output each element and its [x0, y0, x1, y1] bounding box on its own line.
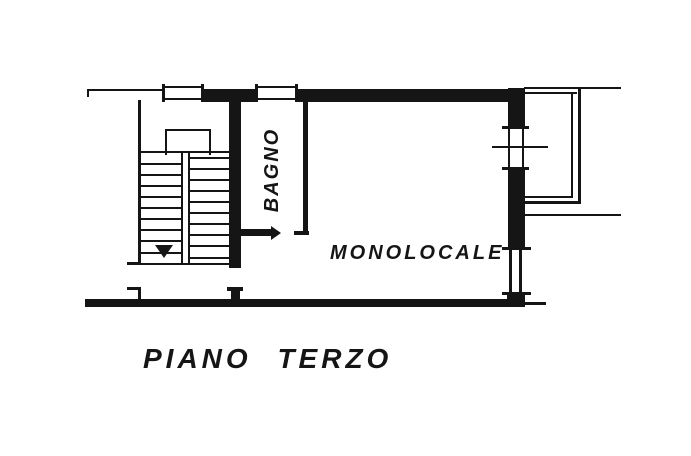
exterior-wall-bottom: [85, 299, 525, 307]
balcony-parapet-inner-right: [571, 92, 573, 198]
stair-tread: [190, 201, 229, 203]
stair-tread: [141, 185, 181, 187]
window-top-left-bottom-line: [163, 98, 204, 100]
window-top-mid-jamb-left: [255, 84, 258, 102]
window-right-upper-jamb-left: [508, 129, 510, 169]
exterior-wall-top-segment-b: [297, 89, 512, 102]
stair-tread: [190, 190, 229, 192]
window-right-upper-cross-line: [492, 146, 548, 148]
window-right-lower-jamb-right: [519, 250, 522, 294]
window-top-mid-bottom-line: [256, 98, 297, 100]
window-right-lower-tick-top: [502, 247, 531, 250]
bathroom-label: BAGNO: [262, 128, 282, 212]
entry-door-stub-left: [138, 290, 141, 302]
exterior-wall-left-end-tick: [87, 89, 89, 97]
stair-center-stringer-left: [181, 152, 183, 264]
entry-door-stub-right: [231, 290, 240, 302]
stair-tread: [190, 223, 229, 225]
stair-direction-arrow-icon: [155, 245, 173, 258]
stair-tread: [190, 245, 229, 247]
exterior-wall-bottom-extension: [524, 302, 546, 305]
stair-tread: [190, 212, 229, 214]
entry-door-stub-right-bar: [227, 287, 243, 291]
stair-tread: [190, 157, 229, 159]
floor-caption: PIANO TERZO: [143, 345, 392, 373]
stair-tread: [141, 240, 181, 242]
balcony-parapet-outer-right: [578, 87, 581, 204]
bathroom-right-wall-foot: [294, 231, 309, 235]
bathroom-right-wall: [303, 100, 308, 233]
bathroom-door-arrow-icon: [271, 226, 281, 240]
stair-tread: [141, 207, 181, 209]
stair-tread: [190, 179, 229, 181]
stair-tread: [141, 218, 181, 220]
window-top-left-jamb-left: [162, 84, 165, 102]
studio-label: MONOLOCALE: [330, 243, 504, 263]
balcony-top-line: [524, 87, 621, 89]
balcony-parapet-outer-bottom: [523, 201, 581, 204]
entry-door-stub-left-tick: [127, 287, 141, 290]
exterior-wall-right-middle: [508, 170, 525, 249]
window-right-lower-jamb-left: [509, 250, 512, 294]
balcony-parapet-inner-bottom: [523, 196, 573, 198]
window-right-upper-jamb-right: [522, 129, 524, 169]
balcony-lower-thin-line: [524, 214, 621, 216]
stair-tread: [141, 196, 181, 198]
balcony-parapet-inner-top: [523, 92, 577, 94]
exterior-wall-right-upper: [508, 88, 525, 129]
floor-plan: BAGNO MONOLOCALE PIANO TERZO: [0, 0, 691, 456]
stair-tread: [190, 168, 229, 170]
stair-right-wall: [229, 95, 241, 268]
stair-left-wall-bottom-tick: [127, 262, 141, 265]
stair-tread: [190, 234, 229, 236]
bathroom-south-wall-stub: [240, 229, 272, 236]
stair-tread: [141, 174, 181, 176]
exterior-wall-top-thin-line: [88, 89, 164, 91]
window-top-left-top-line: [163, 86, 204, 88]
window-top-mid-top-line: [256, 86, 297, 88]
stair-tread: [141, 229, 181, 231]
stair-bottom-line: [141, 263, 229, 265]
stair-tread: [190, 257, 229, 259]
stair-tread: [141, 163, 181, 165]
window-right-upper-tick-top: [502, 126, 529, 129]
